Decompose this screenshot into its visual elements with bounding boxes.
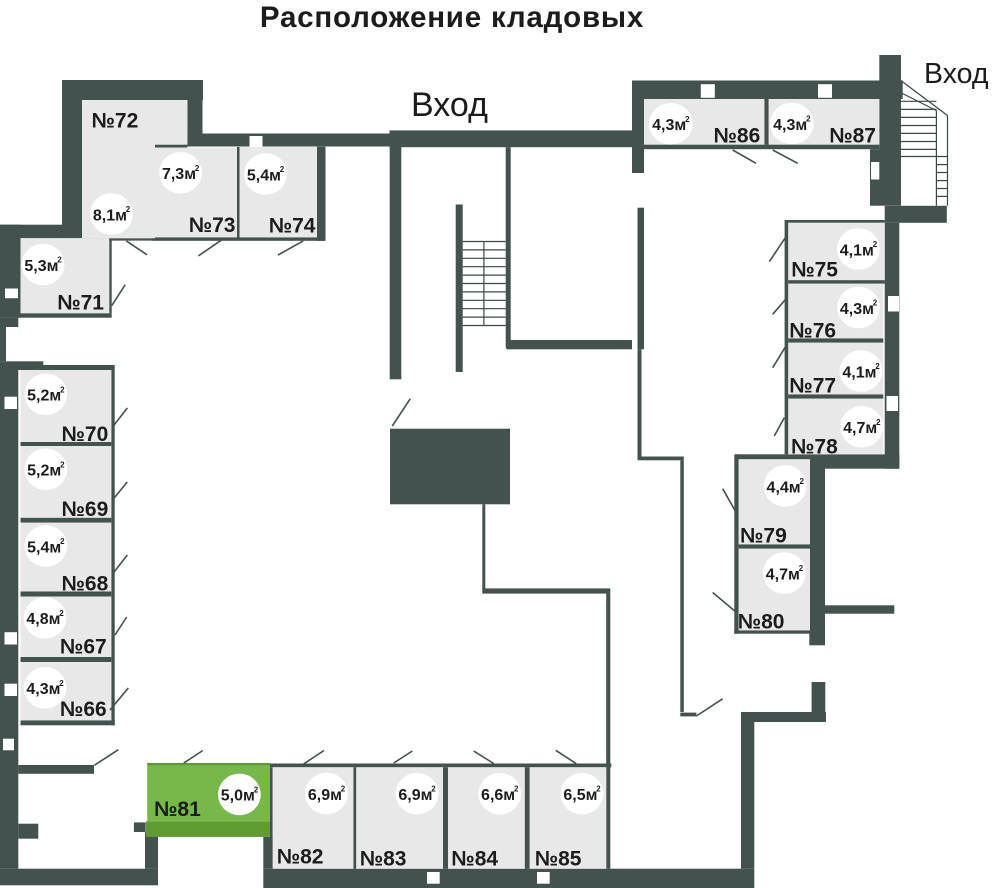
svg-text:4,8м: 4,8м xyxy=(26,611,60,628)
svg-text:5,4м: 5,4м xyxy=(27,539,61,556)
svg-text:2: 2 xyxy=(514,785,519,794)
svg-text:2: 2 xyxy=(60,385,65,394)
svg-text:№79: №79 xyxy=(740,525,787,548)
svg-text:№70: №70 xyxy=(62,423,109,446)
svg-text:№85: №85 xyxy=(535,847,582,870)
svg-text:4,4м: 4,4м xyxy=(767,479,801,496)
svg-text:2: 2 xyxy=(799,564,804,573)
svg-text:№84: №84 xyxy=(451,847,498,870)
svg-text:4,3м: 4,3м xyxy=(26,681,60,698)
svg-text:2: 2 xyxy=(60,537,65,546)
svg-text:2: 2 xyxy=(685,115,690,124)
svg-text:2: 2 xyxy=(59,679,64,688)
svg-text:2: 2 xyxy=(341,785,346,794)
svg-text:№75: №75 xyxy=(791,259,838,282)
svg-text:2: 2 xyxy=(254,785,259,794)
svg-text:№72: №72 xyxy=(92,109,139,132)
svg-text:2: 2 xyxy=(59,609,64,618)
svg-text:2: 2 xyxy=(873,240,878,249)
svg-text:№69: №69 xyxy=(62,498,109,521)
svg-text:№74: №74 xyxy=(269,215,316,238)
svg-text:№83: №83 xyxy=(360,847,407,870)
svg-text:2: 2 xyxy=(60,460,65,469)
svg-text:7,3м: 7,3м xyxy=(162,166,196,183)
svg-text:Вход: Вход xyxy=(411,86,488,124)
svg-text:№77: №77 xyxy=(789,375,836,398)
svg-text:4,3м: 4,3м xyxy=(840,301,874,318)
svg-text:№76: №76 xyxy=(789,320,836,343)
svg-text:2: 2 xyxy=(280,165,285,174)
svg-text:2: 2 xyxy=(806,115,811,124)
svg-text:2: 2 xyxy=(873,299,878,308)
svg-text:5,4м: 5,4м xyxy=(247,167,281,184)
svg-text:№82: №82 xyxy=(277,846,324,869)
svg-text:4,3м: 4,3м xyxy=(652,117,686,134)
svg-text:4,7м: 4,7м xyxy=(766,566,800,583)
svg-text:4,3м: 4,3м xyxy=(773,117,807,134)
svg-text:№86: №86 xyxy=(714,125,761,148)
svg-text:2: 2 xyxy=(875,362,880,371)
svg-text:№80: №80 xyxy=(738,611,785,634)
svg-text:№73: №73 xyxy=(189,214,236,237)
svg-text:Вход: Вход xyxy=(924,58,989,90)
svg-text:2: 2 xyxy=(57,256,62,265)
svg-text:2: 2 xyxy=(800,477,805,486)
svg-text:4,7м: 4,7м xyxy=(843,420,877,437)
svg-text:8,1м: 8,1м xyxy=(93,207,127,224)
svg-text:5,2м: 5,2м xyxy=(27,388,61,405)
svg-text:6,9м: 6,9м xyxy=(398,787,432,804)
svg-text:4,1м: 4,1м xyxy=(840,242,874,259)
svg-text:№78: №78 xyxy=(791,435,838,458)
svg-text:5,2м: 5,2м xyxy=(27,463,61,480)
svg-text:№71: №71 xyxy=(57,292,104,315)
svg-text:6,5м: 6,5м xyxy=(563,787,597,804)
svg-text:4,1м: 4,1м xyxy=(842,364,876,381)
svg-text:2: 2 xyxy=(195,164,200,173)
svg-text:6,6м: 6,6м xyxy=(481,787,515,804)
svg-text:2: 2 xyxy=(596,785,601,794)
svg-text:№68: №68 xyxy=(62,572,109,595)
svg-text:№87: №87 xyxy=(829,125,876,148)
svg-text:6,9м: 6,9м xyxy=(308,787,342,804)
svg-text:5,0м: 5,0м xyxy=(221,788,255,805)
svg-text:2: 2 xyxy=(431,785,436,794)
svg-text:№67: №67 xyxy=(60,636,107,659)
svg-text:2: 2 xyxy=(876,418,881,427)
svg-text:Расположение кладовых: Расположение кладовых xyxy=(260,1,644,34)
svg-text:2: 2 xyxy=(126,205,131,214)
svg-text:5,3м: 5,3м xyxy=(24,258,58,275)
svg-text:№66: №66 xyxy=(60,698,107,721)
svg-text:№81: №81 xyxy=(154,798,201,821)
